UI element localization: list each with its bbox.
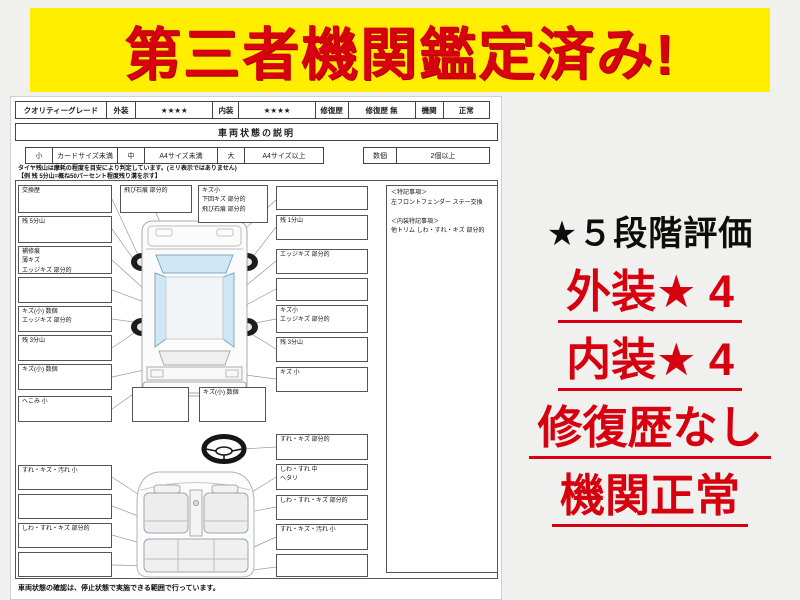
grade-header-bar: クオリティーグレード 外装 ★★★★ 内装 ★★★★ 修復歴 修復歴 無 機関 … <box>15 101 498 119</box>
appraisal-banner-text: 第三者機関鑑定済み! <box>124 9 676 91</box>
damage-box-right-6: 残 3分山 <box>276 337 368 362</box>
special-notes-title: ＜特記事項＞ <box>391 189 493 199</box>
damage-box-left-1: 交換歴 <box>18 185 112 213</box>
grade-cell-exterior-label: 外装 <box>106 101 136 119</box>
appraisal-banner: 第三者機関鑑定済み! <box>30 8 770 92</box>
tire-note-line1: タイヤ残山は摩耗の程度を目安により判定しています。(ミリ表示ではありません) <box>18 166 488 174</box>
damage-box-right-8: すれ・キズ 部分的 <box>276 434 368 460</box>
footer-note: 車両状態の確認は、停止状態で実施できる範囲で行っています。 <box>18 583 220 593</box>
inspection-sheet: クオリティーグレード 外装 ★★★★ 内装 ★★★★ 修復歴 修復歴 無 機関 … <box>10 96 502 600</box>
steering-wheel-icon <box>204 437 244 462</box>
damage-box-right-9: しわ・すれ 中ヘタリ <box>276 464 368 490</box>
damage-box-left-12 <box>18 552 112 577</box>
damage-box-right-12 <box>276 554 368 577</box>
damage-box-right-10: しわ・すれ・キズ 部分的 <box>276 495 368 520</box>
rating-interior: 内装★ 4 <box>502 333 798 391</box>
interior-notes-title: ＜内装特記事項＞ <box>391 218 493 228</box>
damage-box-left-5: キズ(小) 数個エッジキズ 部分的 <box>18 306 112 332</box>
car-top-view-icon <box>131 221 258 396</box>
damage-box-top-1: 飛び石痕 部分的 <box>120 185 192 213</box>
interior-notes-item: 他トリム しわ・すれ・キズ 部分的 <box>391 227 493 237</box>
count-legend: 数個 2個以上 <box>363 147 490 164</box>
grade-cell-exterior-stars: ★★★★ <box>135 101 213 119</box>
count-label: 数個 <box>363 147 397 164</box>
rating-repair-history: 修復歴なし <box>502 401 798 459</box>
size-medium-desc: A4サイズ未満 <box>144 147 218 164</box>
damage-box-right-7: キズ 小 <box>276 367 368 392</box>
damage-box-right-4 <box>276 278 368 301</box>
rating-panel: ★５段階評価 外装★ 4 内装★ 4 修復歴なし 機関正常 <box>502 206 798 527</box>
grade-cell-engine-value: 正常 <box>443 101 490 119</box>
car-interior-view-icon <box>137 472 254 577</box>
damage-box-left-8: へこみ 小 <box>18 396 112 422</box>
damage-box-right-3: エッジキズ 部分的 <box>276 249 368 274</box>
damage-box-left-6: 残 3分山 <box>18 335 112 361</box>
damage-box-bottom-2: キズ(小) 数個 <box>199 387 266 422</box>
size-large-label: 大 <box>217 147 245 164</box>
rating-exterior: 外装★ 4 <box>502 265 798 323</box>
size-small-label: 小 <box>25 147 53 164</box>
damage-box-right-2: 残 1分山 <box>276 215 368 240</box>
size-small-desc: カードサイズ未満 <box>52 147 118 164</box>
vehicle-condition-diagram: 交換歴 残 5分山 補修痕薄キズエッジキズ 部分的 キズ(小) 数個エッジキズ … <box>15 180 498 579</box>
size-large-desc: A4サイズ以上 <box>244 147 324 164</box>
damage-box-right-5: キズ小エッジキズ 部分的 <box>276 305 368 333</box>
damage-box-left-9: すれ・キズ・汚れ 小 <box>18 465 112 490</box>
special-notes-item: 左フロントフェンダー ステー交換 <box>391 199 493 209</box>
grade-cell-quality-grade: クオリティーグレード <box>15 101 107 119</box>
grade-cell-repair-value: 修復歴 無 <box>348 101 416 119</box>
damage-box-right-1 <box>276 186 368 210</box>
rating-engine: 機関正常 <box>502 469 798 527</box>
rating-scale-title: ★５段階評価 <box>502 206 798 255</box>
special-notes-box: ＜特記事項＞ 左フロントフェンダー ステー交換 ＜内装特記事項＞ 他トリム しわ… <box>386 185 498 573</box>
damage-box-left-7: キズ(小) 数個 <box>18 364 112 390</box>
damage-box-left-3: 補修痕薄キズエッジキズ 部分的 <box>18 246 112 274</box>
grade-cell-interior-stars: ★★★★ <box>238 101 315 119</box>
damage-box-left-2: 残 5分山 <box>18 216 112 243</box>
grade-cell-engine-label: 機関 <box>415 101 444 119</box>
damage-box-left-4 <box>18 277 112 303</box>
damage-box-left-11: しわ・すれ・キズ 部分的 <box>18 523 112 548</box>
size-legend: 小 カードサイズ未満 中 A4サイズ未満 大 A4サイズ以上 <box>25 147 324 164</box>
count-desc: 2個以上 <box>396 147 490 164</box>
damage-box-top-2: キズ小下回キズ 部分的飛び石痕 部分的 <box>198 185 268 223</box>
damage-box-right-11: すれ・キズ・汚れ 小 <box>276 524 368 550</box>
tire-note: タイヤ残山は摩耗の程度を目安により判定しています。(ミリ表示ではありません) 【… <box>18 166 488 181</box>
damage-box-left-10 <box>18 494 112 519</box>
section-title: 車両状態の説明 <box>15 123 498 141</box>
grade-cell-interior-label: 内装 <box>212 101 239 119</box>
damage-box-bottom-1 <box>132 387 189 422</box>
grade-cell-repair-label: 修復歴 <box>315 101 349 119</box>
size-medium-label: 中 <box>117 147 145 164</box>
